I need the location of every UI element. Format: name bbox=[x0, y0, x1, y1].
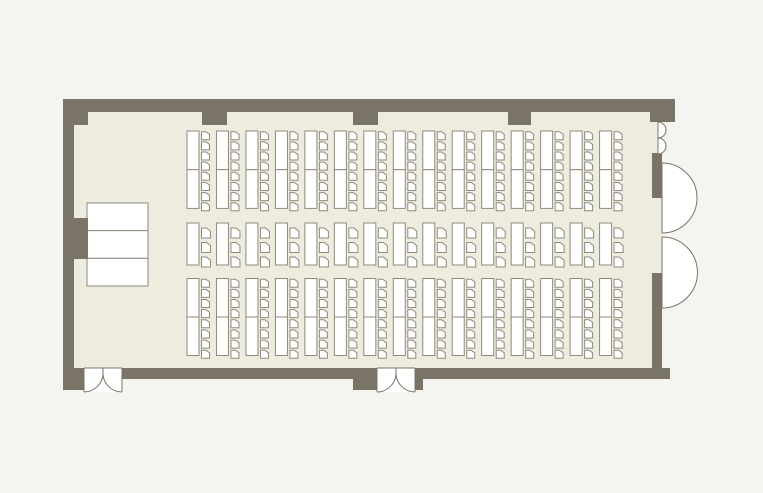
chair bbox=[585, 162, 593, 170]
table bbox=[393, 170, 405, 209]
chair bbox=[202, 228, 211, 238]
chair bbox=[437, 340, 445, 348]
chair bbox=[349, 228, 358, 238]
chair bbox=[378, 310, 386, 318]
chair bbox=[526, 142, 534, 150]
chair bbox=[585, 193, 593, 201]
table bbox=[482, 131, 494, 170]
chair bbox=[378, 300, 386, 308]
chair bbox=[526, 162, 534, 170]
chair bbox=[408, 228, 417, 238]
chair bbox=[526, 279, 534, 287]
chair bbox=[526, 203, 534, 211]
chair bbox=[202, 243, 211, 253]
chair bbox=[614, 279, 622, 287]
chair bbox=[614, 162, 622, 170]
chair bbox=[378, 289, 386, 297]
floor-plan-svg bbox=[0, 0, 763, 493]
chair bbox=[496, 193, 504, 201]
chair bbox=[555, 300, 563, 308]
table bbox=[511, 170, 523, 209]
chair bbox=[467, 350, 475, 358]
chair bbox=[526, 350, 534, 358]
chair bbox=[231, 132, 239, 140]
chair bbox=[378, 330, 386, 338]
chair bbox=[319, 279, 327, 287]
chair bbox=[290, 228, 299, 238]
table bbox=[275, 170, 287, 209]
table bbox=[216, 170, 228, 209]
chair bbox=[437, 350, 445, 358]
table bbox=[482, 223, 494, 265]
chair bbox=[349, 300, 357, 308]
chair bbox=[378, 152, 386, 160]
chair bbox=[496, 340, 504, 348]
chair bbox=[290, 203, 298, 211]
chair bbox=[614, 340, 622, 348]
chair bbox=[526, 132, 534, 140]
bottom-left-corner-pillar bbox=[63, 368, 84, 390]
table bbox=[570, 170, 582, 209]
chair bbox=[526, 172, 534, 180]
chair bbox=[614, 203, 622, 211]
chair bbox=[614, 182, 622, 190]
chair bbox=[467, 320, 475, 328]
chair bbox=[290, 152, 298, 160]
table bbox=[334, 317, 346, 356]
top-pillar-3 bbox=[508, 99, 531, 125]
chair bbox=[202, 132, 210, 140]
chair bbox=[614, 257, 623, 267]
chair bbox=[585, 132, 593, 140]
chair bbox=[437, 193, 445, 201]
chair bbox=[231, 257, 240, 267]
chair bbox=[526, 300, 534, 308]
chair bbox=[526, 340, 534, 348]
chair bbox=[290, 340, 298, 348]
chair bbox=[585, 330, 593, 338]
chair bbox=[496, 300, 504, 308]
table bbox=[246, 170, 258, 209]
chair bbox=[408, 203, 416, 211]
chair bbox=[231, 203, 239, 211]
chair bbox=[349, 310, 357, 318]
chair bbox=[349, 350, 357, 358]
chair bbox=[231, 279, 239, 287]
stage-table bbox=[87, 231, 148, 259]
chair bbox=[555, 228, 564, 238]
chair bbox=[231, 340, 239, 348]
chair bbox=[202, 162, 210, 170]
chair bbox=[408, 330, 416, 338]
table bbox=[246, 131, 258, 170]
table bbox=[541, 131, 553, 170]
chair bbox=[467, 228, 476, 238]
chair bbox=[555, 152, 563, 160]
chair bbox=[555, 257, 564, 267]
chair bbox=[496, 320, 504, 328]
table bbox=[393, 317, 405, 356]
chair bbox=[231, 182, 239, 190]
chair bbox=[585, 152, 593, 160]
chair bbox=[555, 172, 563, 180]
table bbox=[275, 223, 287, 265]
table bbox=[600, 131, 612, 170]
chair bbox=[408, 320, 416, 328]
table bbox=[275, 279, 287, 318]
chair bbox=[378, 193, 386, 201]
chair bbox=[202, 193, 210, 201]
chair bbox=[231, 152, 239, 160]
chair bbox=[260, 182, 268, 190]
chair bbox=[202, 172, 210, 180]
table bbox=[364, 223, 376, 265]
chair bbox=[585, 203, 593, 211]
chair bbox=[260, 310, 268, 318]
chair bbox=[585, 279, 593, 287]
chair bbox=[555, 142, 563, 150]
chair bbox=[437, 279, 445, 287]
table bbox=[452, 131, 464, 170]
table bbox=[334, 223, 346, 265]
chair bbox=[555, 243, 564, 253]
chair bbox=[202, 152, 210, 160]
left-wall-pillar bbox=[63, 218, 88, 259]
chair bbox=[349, 193, 357, 201]
chair bbox=[319, 172, 327, 180]
table bbox=[246, 317, 258, 356]
chair bbox=[202, 340, 210, 348]
chair bbox=[467, 289, 475, 297]
chair bbox=[378, 182, 386, 190]
chair bbox=[319, 228, 328, 238]
table bbox=[334, 279, 346, 318]
chair bbox=[467, 340, 475, 348]
chair bbox=[496, 279, 504, 287]
right-wall-upper bbox=[652, 153, 662, 198]
chair bbox=[555, 330, 563, 338]
table bbox=[570, 279, 582, 318]
right-small-door-arc-1 bbox=[658, 122, 666, 138]
table bbox=[393, 131, 405, 170]
table bbox=[452, 317, 464, 356]
chair bbox=[349, 162, 357, 170]
chair bbox=[437, 142, 445, 150]
chair bbox=[260, 152, 268, 160]
chair bbox=[378, 132, 386, 140]
chair bbox=[260, 243, 269, 253]
chair bbox=[408, 340, 416, 348]
chair bbox=[614, 243, 623, 253]
chair bbox=[260, 289, 268, 297]
chair bbox=[231, 289, 239, 297]
chair bbox=[555, 350, 563, 358]
chair bbox=[202, 182, 210, 190]
right-swing-door-lower bbox=[662, 237, 697, 308]
chair bbox=[260, 162, 268, 170]
chair bbox=[290, 257, 299, 267]
table bbox=[570, 317, 582, 356]
chair bbox=[319, 330, 327, 338]
table bbox=[600, 317, 612, 356]
chair bbox=[260, 193, 268, 201]
table bbox=[334, 131, 346, 170]
table bbox=[216, 131, 228, 170]
floor-plan-canvas bbox=[0, 0, 763, 493]
chair bbox=[290, 289, 298, 297]
chair bbox=[319, 340, 327, 348]
chair bbox=[408, 257, 417, 267]
chair bbox=[290, 300, 298, 308]
chair bbox=[260, 320, 268, 328]
table bbox=[334, 170, 346, 209]
table bbox=[511, 279, 523, 318]
table bbox=[600, 223, 612, 265]
chair bbox=[585, 340, 593, 348]
chair bbox=[614, 132, 622, 140]
chair bbox=[231, 300, 239, 308]
chair bbox=[467, 203, 475, 211]
chair bbox=[319, 300, 327, 308]
chair bbox=[202, 350, 210, 358]
table bbox=[187, 131, 199, 170]
chair bbox=[290, 172, 298, 180]
chair bbox=[378, 203, 386, 211]
chair bbox=[614, 320, 622, 328]
chair bbox=[319, 310, 327, 318]
chair bbox=[202, 279, 210, 287]
chair bbox=[437, 320, 445, 328]
table bbox=[364, 279, 376, 318]
chair bbox=[614, 193, 622, 201]
chair bbox=[349, 257, 358, 267]
chair bbox=[614, 310, 622, 318]
chair bbox=[526, 289, 534, 297]
chair bbox=[408, 279, 416, 287]
chair bbox=[585, 350, 593, 358]
chair bbox=[319, 152, 327, 160]
chair bbox=[614, 289, 622, 297]
chair bbox=[408, 152, 416, 160]
chair bbox=[349, 279, 357, 287]
chair bbox=[349, 182, 357, 190]
chair bbox=[231, 142, 239, 150]
top-pillar-2 bbox=[353, 99, 378, 125]
chair bbox=[260, 330, 268, 338]
chair bbox=[614, 142, 622, 150]
chair bbox=[496, 152, 504, 160]
table bbox=[423, 170, 435, 209]
chair bbox=[349, 320, 357, 328]
chair bbox=[290, 132, 298, 140]
chair bbox=[349, 243, 358, 253]
table bbox=[482, 279, 494, 318]
chair bbox=[319, 320, 327, 328]
chair bbox=[437, 132, 445, 140]
chair bbox=[496, 289, 504, 297]
chair bbox=[378, 279, 386, 287]
chair bbox=[231, 320, 239, 328]
chair bbox=[585, 243, 594, 253]
chair bbox=[260, 350, 268, 358]
chair bbox=[526, 310, 534, 318]
chair bbox=[437, 203, 445, 211]
chair bbox=[290, 162, 298, 170]
chair bbox=[378, 320, 386, 328]
table bbox=[364, 131, 376, 170]
chair bbox=[437, 257, 446, 267]
chair bbox=[260, 300, 268, 308]
table bbox=[246, 279, 258, 318]
table bbox=[511, 317, 523, 356]
table bbox=[305, 223, 317, 265]
table bbox=[423, 131, 435, 170]
table bbox=[423, 279, 435, 318]
chair bbox=[496, 172, 504, 180]
chair bbox=[585, 142, 593, 150]
chair bbox=[496, 257, 505, 267]
chair bbox=[349, 340, 357, 348]
chair bbox=[555, 340, 563, 348]
table bbox=[452, 170, 464, 209]
chair bbox=[437, 162, 445, 170]
bottom-door-jamb-left bbox=[353, 368, 377, 390]
chair bbox=[585, 289, 593, 297]
chair bbox=[437, 182, 445, 190]
table bbox=[305, 279, 317, 318]
chair bbox=[378, 350, 386, 358]
chair bbox=[467, 300, 475, 308]
chair bbox=[585, 320, 593, 328]
table bbox=[570, 223, 582, 265]
chair bbox=[526, 320, 534, 328]
chair bbox=[555, 289, 563, 297]
chair bbox=[260, 142, 268, 150]
table bbox=[187, 317, 199, 356]
chair bbox=[290, 243, 299, 253]
chair bbox=[467, 142, 475, 150]
chair bbox=[202, 289, 210, 297]
table bbox=[423, 223, 435, 265]
table bbox=[393, 223, 405, 265]
chair bbox=[290, 350, 298, 358]
table bbox=[187, 223, 199, 265]
chair bbox=[585, 182, 593, 190]
chair bbox=[231, 228, 240, 238]
chair bbox=[467, 162, 475, 170]
chair bbox=[290, 182, 298, 190]
chair bbox=[349, 152, 357, 160]
chair bbox=[467, 132, 475, 140]
chair bbox=[555, 310, 563, 318]
chair bbox=[408, 172, 416, 180]
chair bbox=[290, 142, 298, 150]
chair bbox=[260, 132, 268, 140]
chair bbox=[202, 330, 210, 338]
chair bbox=[467, 310, 475, 318]
chair bbox=[349, 172, 357, 180]
chair bbox=[378, 257, 387, 267]
chair bbox=[349, 142, 357, 150]
chair bbox=[496, 182, 504, 190]
chair bbox=[408, 142, 416, 150]
table bbox=[452, 223, 464, 265]
table bbox=[423, 317, 435, 356]
chair bbox=[319, 193, 327, 201]
table bbox=[541, 317, 553, 356]
chair bbox=[202, 310, 210, 318]
chair bbox=[467, 193, 475, 201]
chair bbox=[467, 243, 476, 253]
chair bbox=[496, 350, 504, 358]
chair bbox=[408, 243, 417, 253]
table bbox=[541, 170, 553, 209]
top-pillar-1 bbox=[202, 99, 227, 125]
chair bbox=[408, 350, 416, 358]
chair bbox=[467, 330, 475, 338]
chair bbox=[290, 320, 298, 328]
chair bbox=[614, 228, 623, 238]
chair bbox=[614, 172, 622, 180]
chair bbox=[408, 310, 416, 318]
chair bbox=[290, 193, 298, 201]
chair bbox=[260, 203, 268, 211]
right-swing-door-upper bbox=[662, 163, 697, 233]
chair bbox=[349, 203, 357, 211]
chair bbox=[319, 350, 327, 358]
chair bbox=[437, 152, 445, 160]
table bbox=[187, 170, 199, 209]
chair bbox=[202, 203, 210, 211]
chair bbox=[319, 289, 327, 297]
table bbox=[482, 317, 494, 356]
chair bbox=[437, 289, 445, 297]
table bbox=[541, 223, 553, 265]
chair bbox=[526, 182, 534, 190]
chair bbox=[378, 172, 386, 180]
table bbox=[216, 223, 228, 265]
chair bbox=[319, 182, 327, 190]
chair bbox=[526, 257, 535, 267]
chair bbox=[437, 330, 445, 338]
stage-table bbox=[87, 203, 148, 231]
chair bbox=[349, 330, 357, 338]
chair bbox=[260, 279, 268, 287]
chair bbox=[555, 320, 563, 328]
chair bbox=[231, 350, 239, 358]
chair bbox=[231, 310, 239, 318]
table bbox=[600, 279, 612, 318]
chair bbox=[378, 228, 387, 238]
chair bbox=[614, 330, 622, 338]
chair bbox=[378, 162, 386, 170]
top-right-corner-pillar bbox=[650, 99, 675, 122]
chair bbox=[467, 182, 475, 190]
table bbox=[364, 170, 376, 209]
chair bbox=[231, 330, 239, 338]
chair bbox=[408, 193, 416, 201]
chair bbox=[614, 152, 622, 160]
chair bbox=[290, 310, 298, 318]
table bbox=[187, 279, 199, 318]
table bbox=[393, 279, 405, 318]
chair bbox=[555, 132, 563, 140]
table bbox=[482, 170, 494, 209]
chair bbox=[496, 142, 504, 150]
table bbox=[600, 170, 612, 209]
chair bbox=[526, 228, 535, 238]
chair bbox=[585, 300, 593, 308]
